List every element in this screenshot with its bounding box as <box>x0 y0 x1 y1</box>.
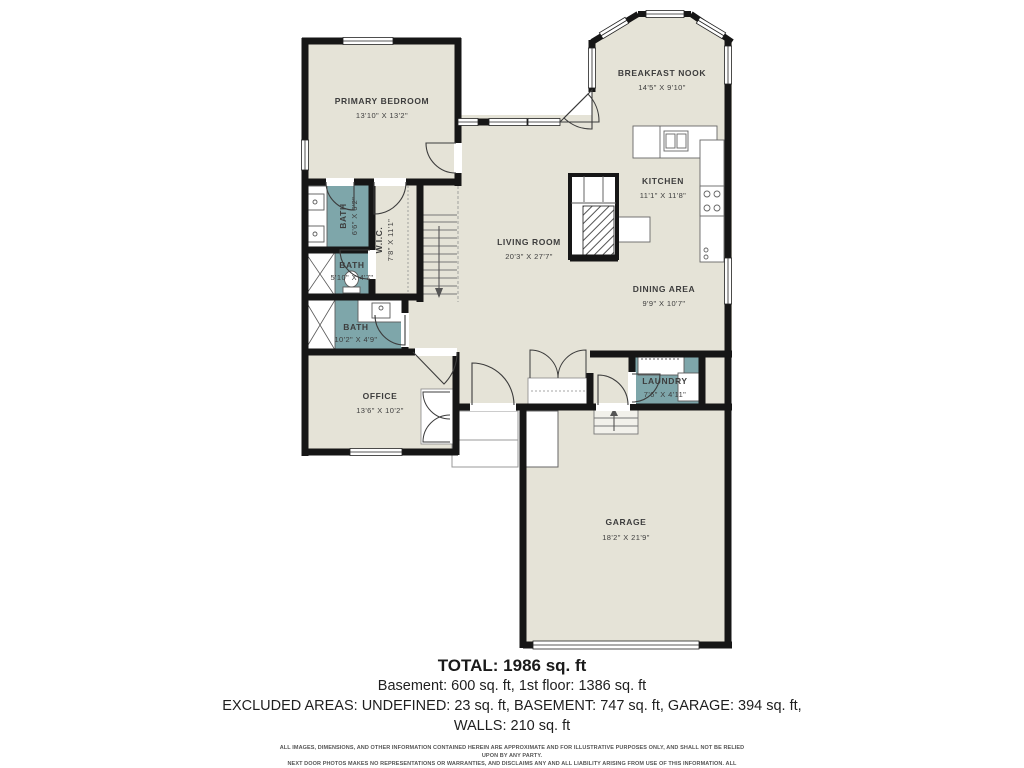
svg-text:W.I.C.: W.I.C. <box>374 227 384 254</box>
window <box>528 119 560 126</box>
shower-third <box>305 300 335 350</box>
area-summary: TOTAL: 1986 sq. ft Basement: 600 sq. ft,… <box>0 655 1024 768</box>
window <box>725 258 732 304</box>
svg-text:LIVING ROOM: LIVING ROOM <box>497 237 561 247</box>
svg-text:BATH: BATH <box>343 322 368 332</box>
window <box>646 11 684 18</box>
kitchen-island <box>617 217 650 242</box>
window <box>458 119 478 126</box>
svg-text:BATH: BATH <box>339 260 364 270</box>
svg-text:DINING AREA: DINING AREA <box>633 284 695 294</box>
svg-text:BATH: BATH <box>338 203 348 228</box>
svg-text:18'2" X 21'9": 18'2" X 21'9" <box>602 533 650 542</box>
window <box>725 46 732 84</box>
disclaimer-line: NEXT DOOR PHOTOS MAKES NO REPRESENTATION… <box>272 760 752 768</box>
total-area: TOTAL: 1986 sq. ft <box>0 655 1024 676</box>
disclaimer: ALL IMAGES, DIMENSIONS, AND OTHER INFORM… <box>272 744 752 768</box>
svg-text:GARAGE: GARAGE <box>606 517 647 527</box>
floor-areas: Basement: 600 sq. ft, 1st floor: 1386 sq… <box>0 676 1024 696</box>
garage-door <box>533 641 699 649</box>
garage-steps <box>594 408 638 434</box>
wall-area: WALLS: 210 sq. ft <box>0 716 1024 736</box>
office-closet <box>421 389 454 444</box>
kitchen-counter-right <box>700 140 724 262</box>
svg-text:20'3" X 27'7": 20'3" X 27'7" <box>505 252 553 261</box>
disclaimer-line: ALL IMAGES, DIMENSIONS, AND OTHER INFORM… <box>272 744 752 760</box>
floor-plan-page: PRIMARY BEDROOM 13'10" X 13'2" BREAKFAST… <box>0 0 1024 768</box>
svg-text:9'9" X 10'7": 9'9" X 10'7" <box>642 299 685 308</box>
svg-text:10'2" X 4'9": 10'2" X 4'9" <box>334 335 377 344</box>
excluded-areas: EXCLUDED AREAS: UNDEFINED: 23 sq. ft, BA… <box>0 696 1024 716</box>
svg-text:11'1" X 11'8": 11'1" X 11'8" <box>640 191 686 200</box>
floor-plan: PRIMARY BEDROOM 13'10" X 13'2" BREAKFAST… <box>0 0 1024 652</box>
window <box>489 119 527 126</box>
svg-text:7'8" X 11'1": 7'8" X 11'1" <box>386 219 395 261</box>
svg-text:KITCHEN: KITCHEN <box>642 176 684 186</box>
window <box>302 140 309 170</box>
svg-text:13'10" X 13'2": 13'10" X 13'2" <box>356 111 408 120</box>
svg-text:6'6" X 6'2": 6'6" X 6'2" <box>350 197 359 235</box>
svg-text:PRIMARY BEDROOM: PRIMARY BEDROOM <box>335 96 429 106</box>
window <box>350 449 402 456</box>
vanity-third <box>358 300 402 322</box>
front-porch <box>452 411 518 467</box>
svg-text:OFFICE: OFFICE <box>363 391 398 401</box>
window <box>343 38 393 45</box>
svg-text:LAUNDRY: LAUNDRY <box>642 376 687 386</box>
svg-text:BREAKFAST NOOK: BREAKFAST NOOK <box>618 68 706 78</box>
window <box>589 48 596 88</box>
garage-notch <box>524 411 558 467</box>
svg-text:13'6" X 10'2": 13'6" X 10'2" <box>356 406 404 415</box>
svg-text:14'5" X 9'10": 14'5" X 9'10" <box>638 83 686 92</box>
svg-text:7'6" X 4'11": 7'6" X 4'11" <box>644 390 686 399</box>
svg-text:5'10" X 4'7": 5'10" X 4'7" <box>330 273 373 282</box>
fireplace <box>570 175 617 258</box>
